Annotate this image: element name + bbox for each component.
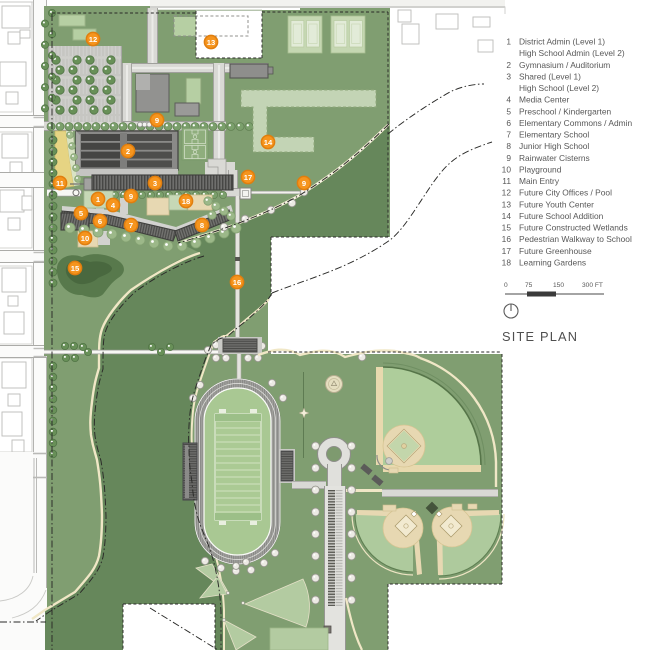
- svg-text:9: 9: [155, 116, 159, 125]
- svg-text:Future Greenhouse: Future Greenhouse: [519, 246, 592, 256]
- svg-text:7: 7: [506, 130, 511, 140]
- svg-text:9: 9: [506, 153, 511, 163]
- svg-text:11: 11: [502, 176, 511, 186]
- svg-text:6: 6: [506, 118, 511, 128]
- svg-text:8: 8: [200, 221, 204, 230]
- svg-text:Playground: Playground: [519, 164, 562, 174]
- svg-text:300 FT: 300 FT: [582, 282, 603, 289]
- svg-text:9: 9: [129, 192, 133, 201]
- svg-text:Future School Addition: Future School Addition: [519, 211, 604, 221]
- svg-text:7: 7: [129, 221, 133, 230]
- svg-text:4: 4: [506, 95, 511, 105]
- svg-text:5: 5: [506, 106, 511, 116]
- svg-text:Future City Offices / Pool: Future City Offices / Pool: [519, 188, 612, 198]
- svg-text:3: 3: [153, 179, 157, 188]
- svg-text:9: 9: [302, 179, 306, 188]
- svg-text:Elementary School: Elementary School: [519, 130, 589, 140]
- svg-text:15: 15: [502, 223, 512, 233]
- svg-text:Rainwater Cisterns: Rainwater Cisterns: [519, 153, 590, 163]
- svg-text:17: 17: [502, 246, 512, 256]
- svg-text:Future Youth Center: Future Youth Center: [519, 199, 594, 209]
- svg-text:14: 14: [264, 138, 273, 147]
- svg-text:10: 10: [81, 234, 89, 243]
- svg-text:District Admin (Level 1): District Admin (Level 1): [519, 37, 605, 47]
- svg-text:3: 3: [506, 71, 511, 81]
- svg-text:13: 13: [207, 38, 215, 47]
- svg-text:Learning Gardens: Learning Gardens: [519, 257, 586, 267]
- svg-text:Elementary Commons / Admin: Elementary Commons / Admin: [519, 118, 632, 128]
- svg-text:14: 14: [502, 211, 512, 221]
- svg-text:1: 1: [506, 37, 511, 47]
- svg-text:Junior High School: Junior High School: [519, 141, 589, 151]
- svg-text:Future Constructed Wetlands: Future Constructed Wetlands: [519, 223, 628, 233]
- svg-text:13: 13: [502, 199, 512, 209]
- svg-text:16: 16: [502, 234, 512, 244]
- svg-text:High School (Level 2): High School (Level 2): [519, 83, 599, 93]
- svg-text:High School Admin (Level 2): High School Admin (Level 2): [519, 48, 625, 58]
- svg-text:75: 75: [525, 282, 533, 289]
- svg-text:Shared (Level 1): Shared (Level 1): [519, 71, 581, 81]
- svg-text:2: 2: [126, 147, 130, 156]
- svg-text:18: 18: [182, 197, 190, 206]
- svg-text:SITE PLAN: SITE PLAN: [502, 329, 578, 344]
- svg-text:11: 11: [56, 179, 65, 188]
- svg-text:12: 12: [502, 188, 512, 198]
- svg-text:Gymnasium / Auditorium: Gymnasium / Auditorium: [519, 60, 610, 70]
- svg-text:18: 18: [502, 257, 512, 267]
- svg-text:Pedestrian Walkway to School: Pedestrian Walkway to School: [519, 234, 632, 244]
- svg-text:0: 0: [504, 282, 508, 289]
- svg-text:2: 2: [506, 60, 511, 70]
- svg-text:12: 12: [89, 35, 97, 44]
- svg-text:16: 16: [233, 278, 241, 287]
- svg-text:Main Entry: Main Entry: [519, 176, 560, 186]
- svg-text:6: 6: [98, 217, 102, 226]
- svg-text:150: 150: [553, 282, 564, 289]
- svg-text:Media Center: Media Center: [519, 95, 569, 105]
- svg-text:8: 8: [506, 141, 511, 151]
- svg-text:15: 15: [71, 264, 80, 273]
- svg-text:10: 10: [502, 164, 512, 174]
- svg-text:Preschool / Kindergarten: Preschool / Kindergarten: [519, 106, 612, 116]
- svg-text:17: 17: [244, 173, 252, 182]
